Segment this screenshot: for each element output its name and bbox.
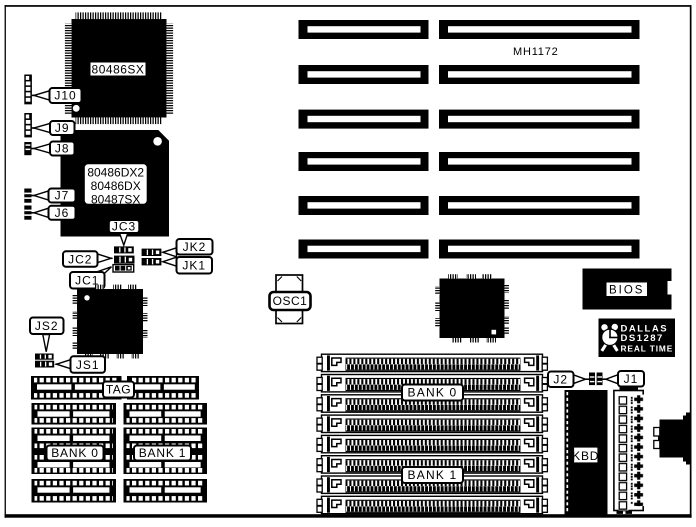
svg-text:BIOS: BIOS <box>609 285 644 297</box>
svg-text:OSC1: OSC1 <box>273 294 308 308</box>
svg-text:J7: J7 <box>55 189 70 203</box>
svg-text:J1: J1 <box>624 372 639 386</box>
svg-text:JK1: JK1 <box>182 258 206 272</box>
svg-text:JC2: JC2 <box>68 252 92 266</box>
svg-text:80486DX2: 80486DX2 <box>87 166 144 180</box>
svg-text:JK2: JK2 <box>183 240 207 254</box>
svg-text:J10: J10 <box>54 89 76 103</box>
svg-text:TAG: TAG <box>106 383 131 397</box>
svg-text:J2: J2 <box>553 372 568 386</box>
svg-text:J8: J8 <box>55 142 70 156</box>
svg-text:REAL TIME: REAL TIME <box>621 344 674 354</box>
svg-text:DS1287: DS1287 <box>621 333 664 344</box>
svg-text:BANK 1: BANK 1 <box>408 468 458 482</box>
svg-text:MH1172: MH1172 <box>513 46 559 58</box>
svg-text:BANK 0: BANK 0 <box>408 386 458 400</box>
svg-text:J6: J6 <box>55 206 70 220</box>
svg-text:80487SX: 80487SX <box>91 193 140 207</box>
svg-text:BANK 0: BANK 0 <box>51 446 99 460</box>
svg-text:JS1: JS1 <box>76 358 100 372</box>
svg-text:JS2: JS2 <box>35 319 59 333</box>
svg-text:80486DX: 80486DX <box>91 179 141 193</box>
svg-text:80486SX: 80486SX <box>92 62 145 76</box>
svg-text:KBD: KBD <box>572 449 599 463</box>
svg-text:J9: J9 <box>55 121 70 135</box>
svg-text:JC3: JC3 <box>112 220 136 234</box>
svg-text:BANK 1: BANK 1 <box>139 446 187 460</box>
